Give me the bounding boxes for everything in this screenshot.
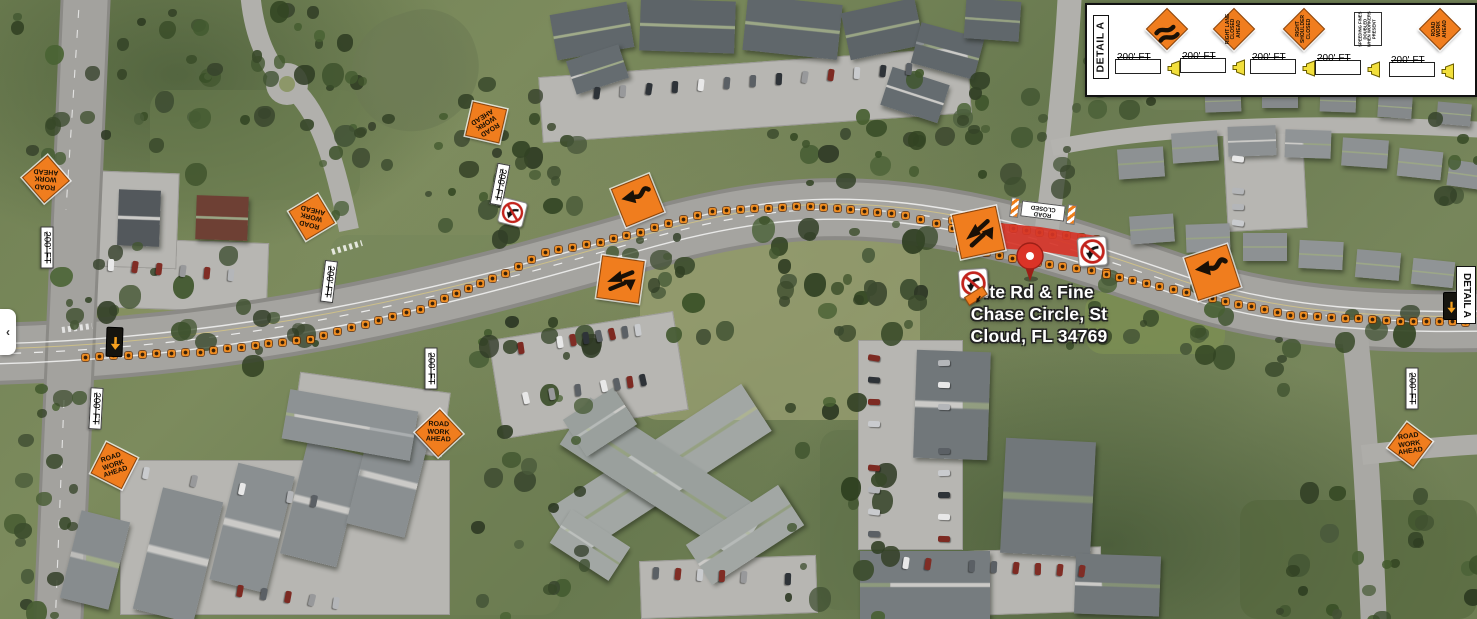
spacing-200ft-label: 200' FT xyxy=(1117,52,1151,63)
detail-a-tab: DETAIL A xyxy=(1456,266,1476,324)
spacing-200ft-label: 200' FT xyxy=(1317,53,1351,64)
distance-label: 200' FT xyxy=(425,347,438,389)
sign-label: ROADWORKAHEAD xyxy=(20,153,70,203)
road-work-ahead-sign[interactable]: ROADWORKAHEAD xyxy=(1384,419,1435,470)
speeding-fines-doubled-sign: SPEEDING FINESDOUBLEDWHEN WORKERSPRESENT xyxy=(1354,12,1382,46)
distance-label-text: 200' FT xyxy=(42,231,53,263)
sign-label: SPEEDING FINESDOUBLEDWHEN WORKERSPRESENT xyxy=(1359,11,1377,47)
spacing-200ft-box: 200' FT xyxy=(1315,60,1361,75)
legend-title: DETAIL A xyxy=(1095,21,1107,72)
yellow-sign-marker-icon xyxy=(1232,59,1246,76)
spacing-200ft-label: 200' FT xyxy=(1252,52,1286,63)
road-work-ahead-sign: ROADWORKAHEAD xyxy=(1419,8,1461,50)
no-left-turn-sign[interactable] xyxy=(956,266,989,299)
flashing-arrow-board[interactable] xyxy=(105,327,123,358)
double-reverse-curve-glyph xyxy=(1146,8,1188,50)
distance-label: 200' FT xyxy=(88,387,103,430)
sign-face xyxy=(596,255,645,304)
no-left-turn-sign[interactable] xyxy=(496,196,529,229)
detail-a-tab-label: DETAIL A xyxy=(1461,273,1472,318)
spacing-200ft-label: 200' FT xyxy=(1391,55,1425,66)
road-work-ahead-sign[interactable]: ROADWORKAHEAD xyxy=(414,408,463,457)
spacing-200ft-label: 200' FT xyxy=(1182,51,1216,62)
barricade-stripe-panel xyxy=(1009,197,1020,218)
sign-label: ROADWORKAHEAD xyxy=(1419,8,1461,50)
road-work-ahead-sign[interactable]: ROADWORKAHEAD xyxy=(20,153,70,203)
sign-label: RIGHTSHOULDERCLOSED xyxy=(1283,8,1325,50)
spacing-200ft-box: 200' FT xyxy=(1115,59,1161,74)
yellow-sign-marker-icon xyxy=(1441,63,1455,80)
distance-label: 200' FT xyxy=(1406,367,1419,409)
sign-face xyxy=(951,205,1004,258)
yellow-sign-marker-icon xyxy=(1167,60,1181,77)
side-panel-collapse-tab[interactable]: ‹ xyxy=(0,309,16,355)
distance-label: 200' FT xyxy=(41,226,54,268)
distance-label-text: 200' FT xyxy=(90,392,103,424)
distance-label-text: 200' FT xyxy=(322,264,337,297)
spacing-200ft-box: 200' FT xyxy=(1250,59,1296,74)
legend-title-box: DETAIL A xyxy=(1093,15,1109,79)
distance-label-text: 200' FT xyxy=(426,352,437,384)
yellow-sign-marker-icon xyxy=(1367,61,1381,78)
map-canvas[interactable]: ROADWORKAHEADROADWORKAHEADROADWORKAHEADR… xyxy=(0,0,1477,619)
no-left-turn-sign[interactable] xyxy=(1075,234,1108,267)
two-way-shift-arrows-sign[interactable] xyxy=(596,255,645,304)
yellow-sign-marker-icon xyxy=(1302,60,1316,77)
sign-label: RIGHT LANECLOSEDAHEAD xyxy=(1213,8,1255,50)
chevron-left-icon: ‹ xyxy=(6,325,10,339)
spacing-200ft-box: 200' FT xyxy=(1180,58,1226,73)
place-label-line: Cloud, FL 34769 xyxy=(948,325,1130,347)
detail-a-legend-panel: DETAIL A 200' FTRIGHT LANECLOSEDAHEAD200… xyxy=(1085,3,1477,97)
right-shoulder-closed-sign: RIGHTSHOULDERCLOSED xyxy=(1283,8,1325,50)
sign-label: ROADWORKAHEAD xyxy=(1384,419,1435,470)
sign-label: ROADWORKAHEAD xyxy=(414,408,463,457)
spacing-200ft-box: 200' FT xyxy=(1389,62,1435,77)
two-way-shift-arrows-sign[interactable] xyxy=(951,205,1004,258)
right-lane-closed-ahead-sign: RIGHT LANECLOSEDAHEAD xyxy=(1213,8,1255,50)
distance-label-text: 200' FT xyxy=(1407,372,1418,404)
double-reverse-curve-sign xyxy=(1146,8,1188,50)
arrow-board-face xyxy=(105,327,123,358)
road-closed-sign: ROADCLOSED xyxy=(1020,200,1066,221)
